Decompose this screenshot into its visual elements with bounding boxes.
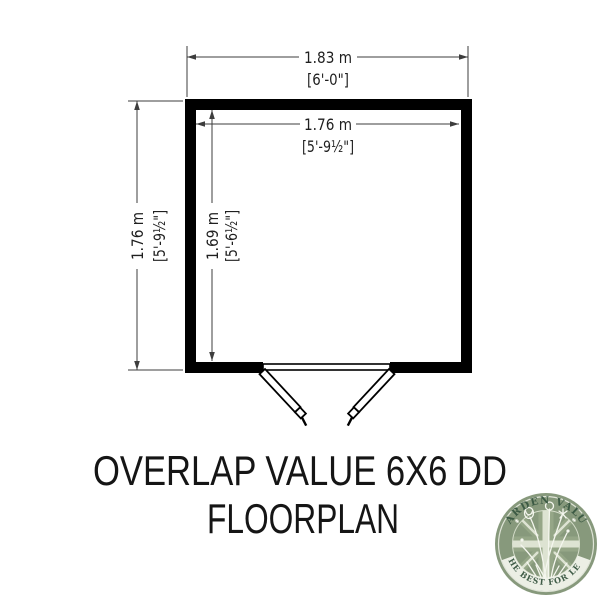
product-floorplan-image: 1.83 m [6'-0"] 1.76 m [5'-9½"] 1.76 m [5… <box>0 0 600 600</box>
arrow-up-icon <box>134 101 140 110</box>
arrow-down-icon <box>134 361 140 370</box>
dim-label-outer-depth-imperial: [5'-9½"] <box>150 210 169 262</box>
door-leaf-tick <box>300 417 308 425</box>
dim-label-inner-width-imperial: [5'-9½"] <box>302 137 354 156</box>
door-leaf-left <box>259 369 313 426</box>
door-frame <box>263 364 390 370</box>
dim-label-inner-depth-metric: 1.69 m <box>203 212 222 260</box>
dim-label-inner-depth-imperial: [5'-6½"] <box>222 210 241 262</box>
product-title-line1: OVERLAP VALUE 6X6 DD <box>93 447 507 494</box>
arrow-right-icon <box>459 54 468 60</box>
dim-label-outer-width-metric: 1.83 m <box>304 48 352 67</box>
door-leaf-tick <box>346 417 354 425</box>
dim-label-outer-depth-metric: 1.76 m <box>128 212 147 260</box>
double-doors <box>259 369 395 426</box>
door-leaf-right <box>342 369 396 426</box>
door-leaf-panel <box>354 369 395 412</box>
dim-label-inner-width-metric: 1.76 m <box>304 115 352 134</box>
floorplan-drawing: 1.83 m [6'-0"] 1.76 m [5'-9½"] 1.76 m [5… <box>0 0 600 600</box>
arrow-left-icon <box>187 54 196 60</box>
product-title-line2: FLOORPLAN <box>207 495 399 542</box>
dim-label-outer-width-imperial: [6'-0"] <box>307 70 349 89</box>
door-leaf-panel <box>260 369 301 412</box>
